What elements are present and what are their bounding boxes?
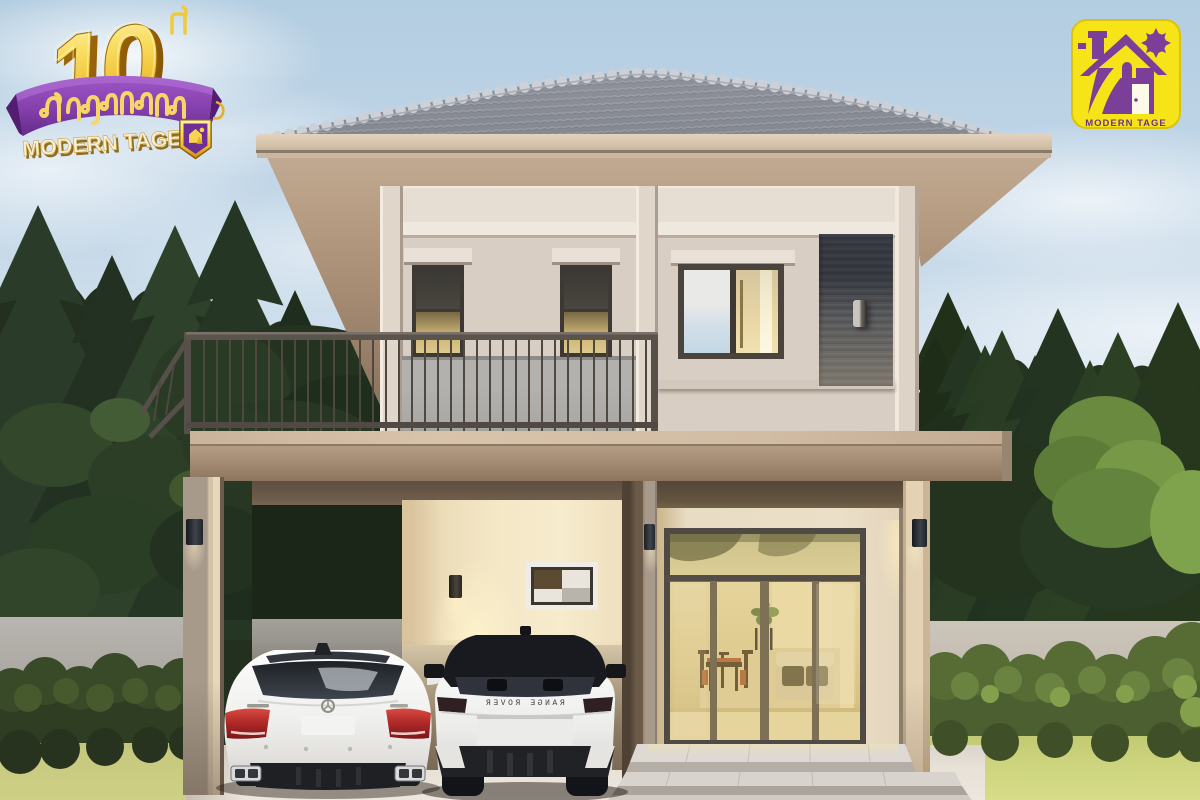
svg-text:RANGE ROVER: RANGE ROVER <box>483 699 564 708</box>
svg-text:MODERN TAGE: MODERN TAGE <box>1085 118 1167 129</box>
